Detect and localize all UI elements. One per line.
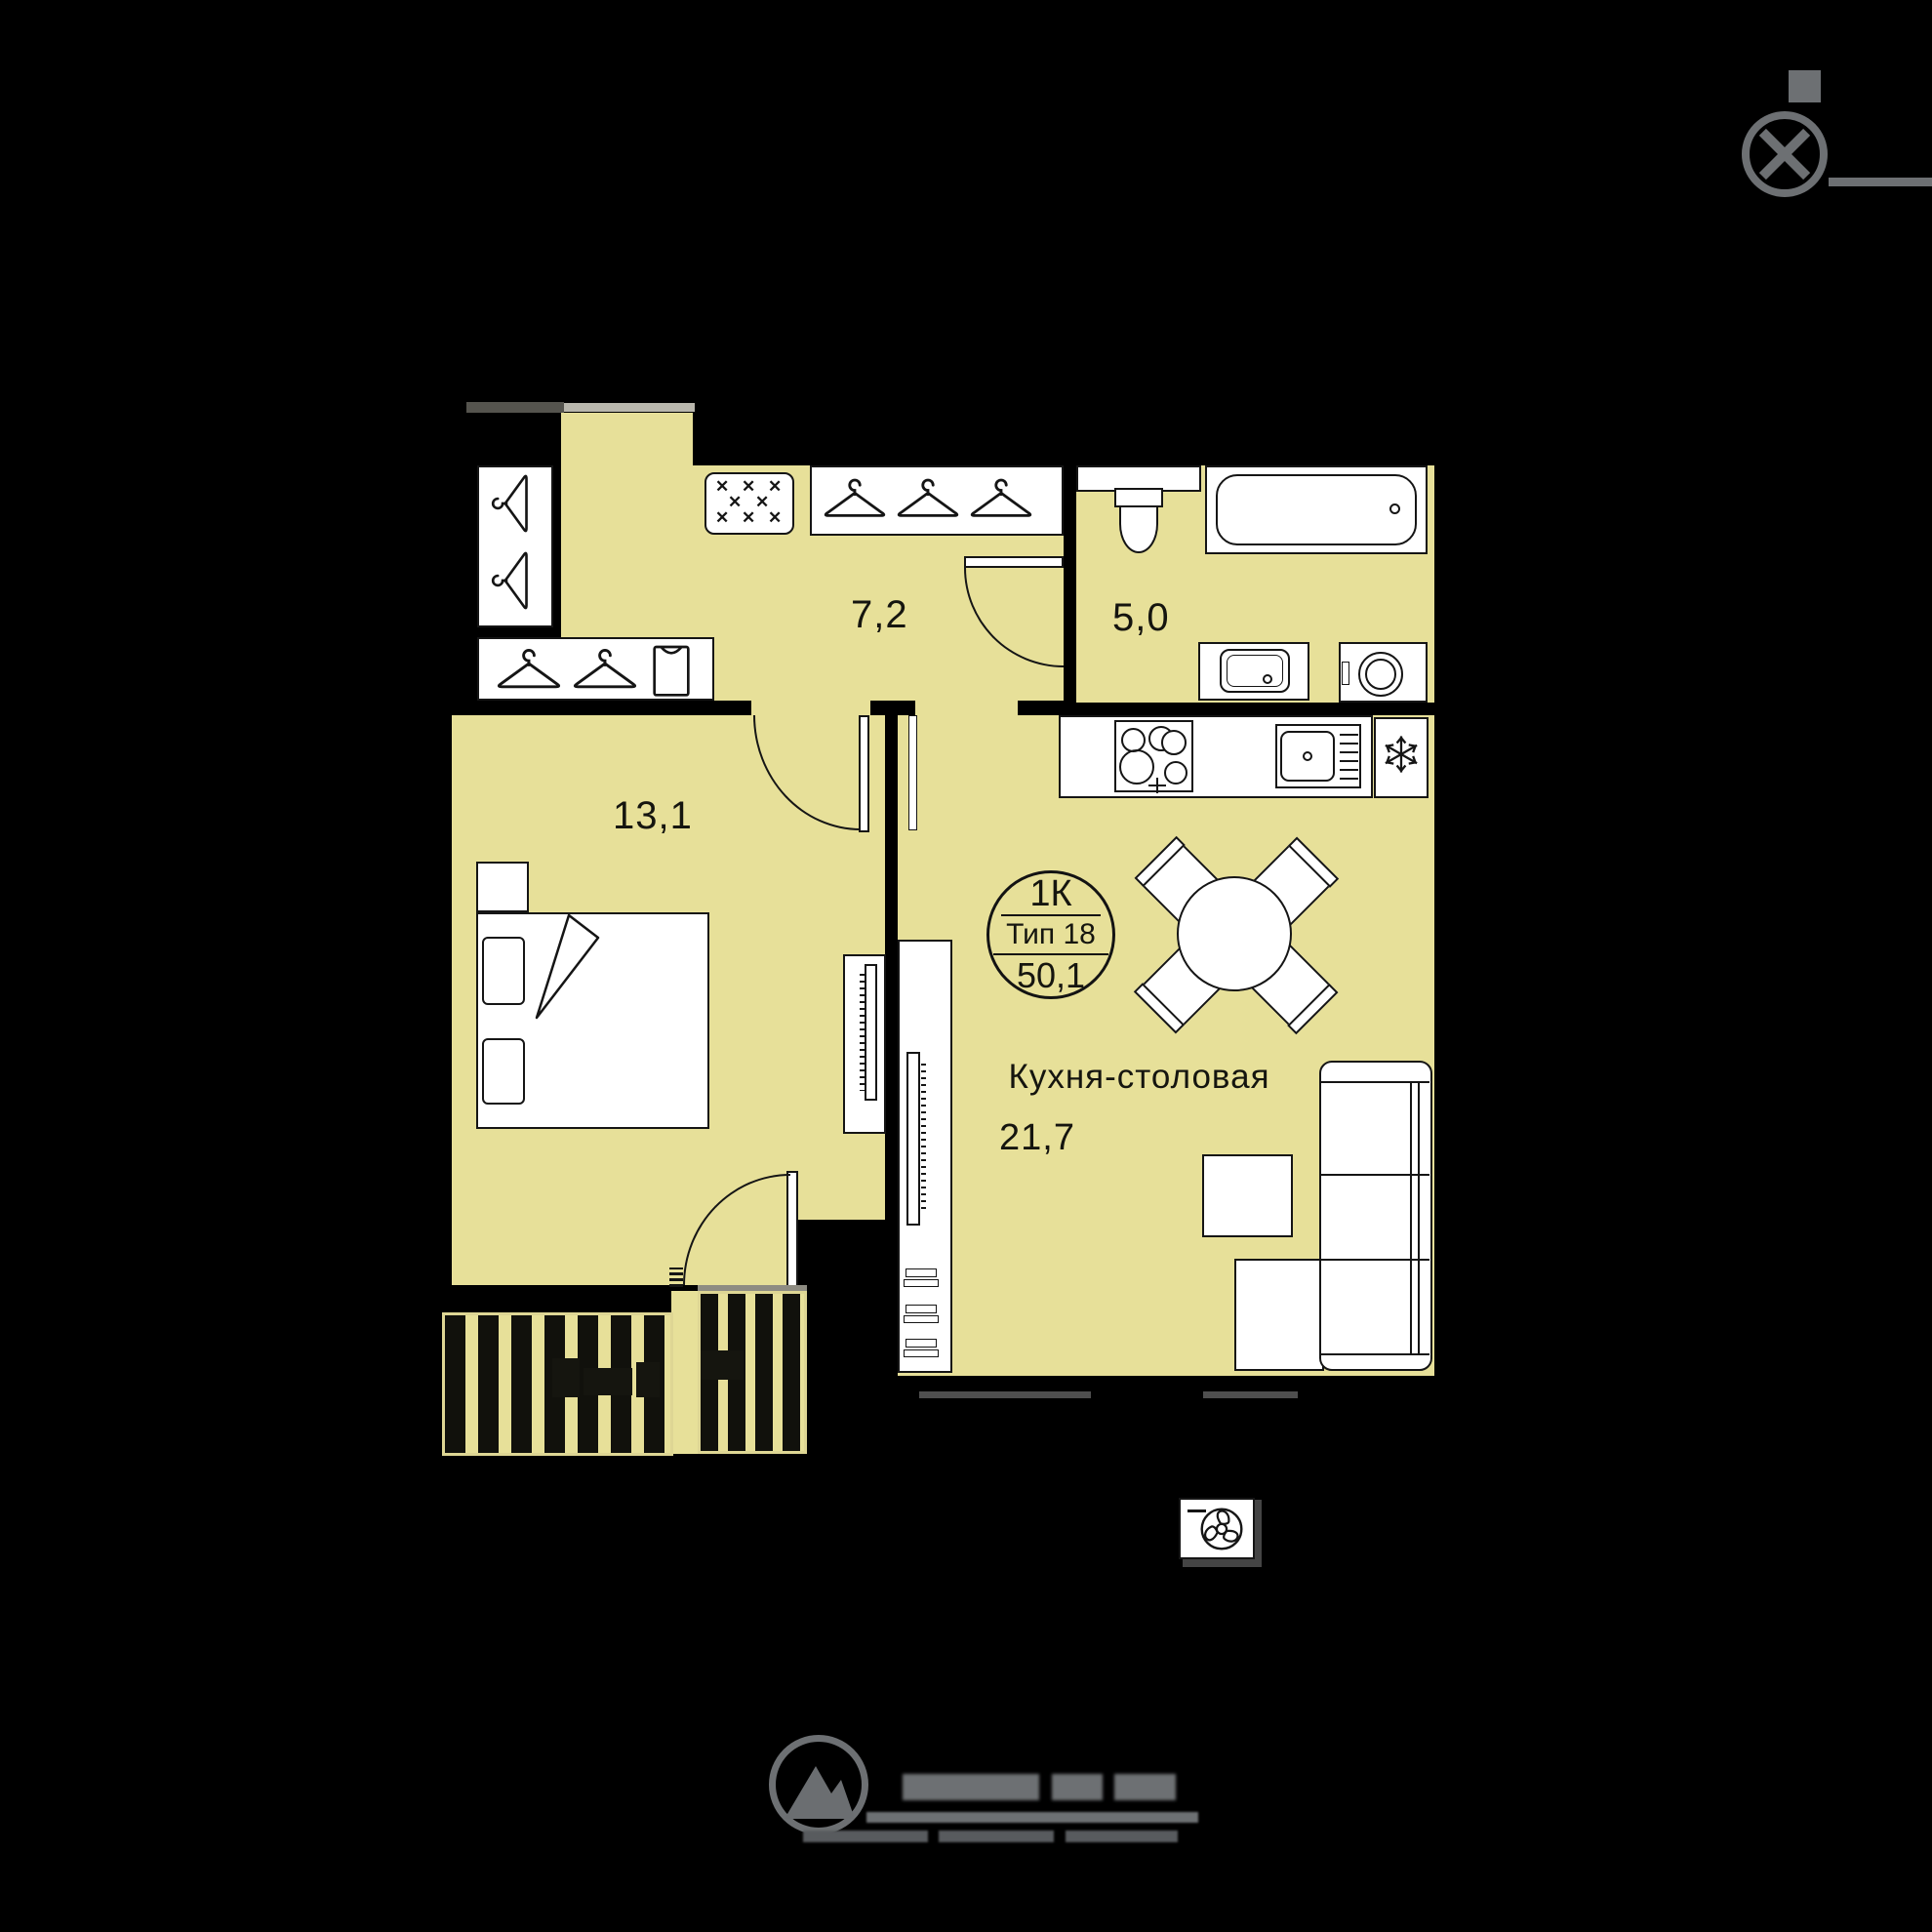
pillow [482, 937, 525, 1005]
snowflake-icon [1379, 732, 1424, 777]
hanger-icon [570, 645, 640, 698]
hall-kitchen-passage [915, 701, 1018, 718]
floor-plan-page: { "badge": { "rooms_label": "1К", "type_… [0, 0, 1932, 1932]
entry-threshold-dark [466, 402, 564, 413]
balcony-threshold [671, 1291, 698, 1454]
badge-area: 50,1 [1017, 955, 1085, 996]
sofa-armrest-line [1321, 1081, 1429, 1083]
badge-type: Тип 18 [1006, 916, 1096, 953]
media-shelf [904, 1315, 939, 1323]
logo-tagline-block [803, 1831, 928, 1842]
badge-rooms: 1К [1029, 873, 1071, 914]
hanger-icon [494, 645, 564, 698]
kitchen-area-label: 21,7 [999, 1117, 1075, 1159]
stove-plus-icon [1156, 778, 1158, 793]
bathroom-door-leaf [964, 556, 1064, 568]
pillow [482, 1038, 525, 1105]
media-shelf [904, 1279, 939, 1287]
washer-drum-inner [1365, 659, 1396, 690]
nightstand [476, 862, 529, 912]
ac-unit-shadow-bottom [1183, 1559, 1262, 1567]
balcony-furniture-mark [636, 1362, 660, 1397]
kitchen-name-label: Кухня-столовая [971, 1058, 1308, 1097]
logo-wordmark-block [1052, 1774, 1103, 1800]
x-pattern-icon [728, 494, 742, 510]
media-shelf [906, 1268, 937, 1277]
drainboard-lines [1340, 734, 1358, 781]
burner-icon [1119, 749, 1154, 785]
x-pattern-icon [768, 509, 782, 526]
balcony-window-line [698, 1285, 807, 1291]
x-pattern-icon [768, 478, 782, 495]
tv-ticks [860, 974, 865, 1091]
sofa-cushion-line [1321, 1174, 1429, 1176]
hanger-icon [894, 473, 962, 528]
bedroom-area-label: 13,1 [613, 794, 693, 838]
logo-mountain-icon [777, 1745, 861, 1827]
sofa-chaise [1234, 1259, 1324, 1371]
sink-faucet-dot [1303, 751, 1312, 761]
kitchen-sink [1275, 724, 1361, 788]
wall-hatch [669, 1268, 683, 1287]
x-pattern-icon [742, 478, 755, 495]
logo-tagline-block [1066, 1831, 1178, 1842]
logo-wordmark-block [903, 1774, 1039, 1800]
media-shelf [906, 1305, 937, 1313]
bathtub-inner [1216, 474, 1417, 545]
bathroom-area-label: 5,0 [1112, 596, 1170, 640]
burner-icon [1164, 761, 1187, 785]
washer-tray [1342, 662, 1349, 685]
shoe-cabinet [704, 472, 794, 535]
hallway-area-label: 7,2 [851, 593, 908, 637]
balcony-furniture-mark [701, 1350, 744, 1380]
kitchen-window [1203, 1391, 1298, 1398]
stove [1114, 720, 1193, 792]
hanger-icon [821, 473, 889, 528]
sofa [1319, 1061, 1432, 1371]
x-pattern-icon [715, 509, 729, 526]
bedroom-tv [865, 964, 877, 1101]
sofa-armrest-line [1321, 1353, 1429, 1355]
dining-table [1177, 876, 1292, 991]
apartment-type-badge: 1К Тип 18 50,1 [986, 870, 1115, 999]
entry-threshold-light [564, 403, 695, 412]
tv-ticks [921, 1064, 926, 1214]
hanger-icon [967, 473, 1035, 528]
compass-baseline [1829, 178, 1932, 186]
logo-wordmark-block [1114, 1774, 1176, 1800]
hanger-icon [489, 471, 536, 536]
entry-vestibule-floor [561, 413, 693, 471]
balcony-furniture-mark [584, 1368, 632, 1395]
bath-sink-basin-inner [1227, 655, 1283, 687]
logo-underline-block [866, 1812, 1198, 1823]
media-shelf [904, 1349, 939, 1357]
logo-tagline-block [939, 1831, 1054, 1842]
fan-icon [1198, 1506, 1245, 1552]
burner-icon [1161, 730, 1187, 755]
bathtub-drain [1389, 503, 1400, 514]
sofa-cushion-line [1321, 1259, 1429, 1261]
sofa-backrest-line [1418, 1081, 1420, 1355]
hanger-icon [489, 548, 536, 613]
coffee-table [1202, 1154, 1293, 1237]
kitchen-window [919, 1391, 1091, 1398]
blanket-fold [527, 907, 605, 1026]
living-tv [906, 1052, 920, 1226]
compass-square [1789, 70, 1821, 102]
media-shelf [906, 1339, 937, 1348]
folded-shirt-icon [652, 643, 691, 698]
sofa-backrest-line [1410, 1081, 1412, 1355]
bath-sink-faucet [1263, 674, 1272, 684]
kitchen-side-door-jamb [908, 715, 917, 830]
balcony-furniture-mark [552, 1358, 580, 1397]
x-pattern-icon [742, 509, 755, 526]
toilet-tank [1114, 488, 1163, 507]
